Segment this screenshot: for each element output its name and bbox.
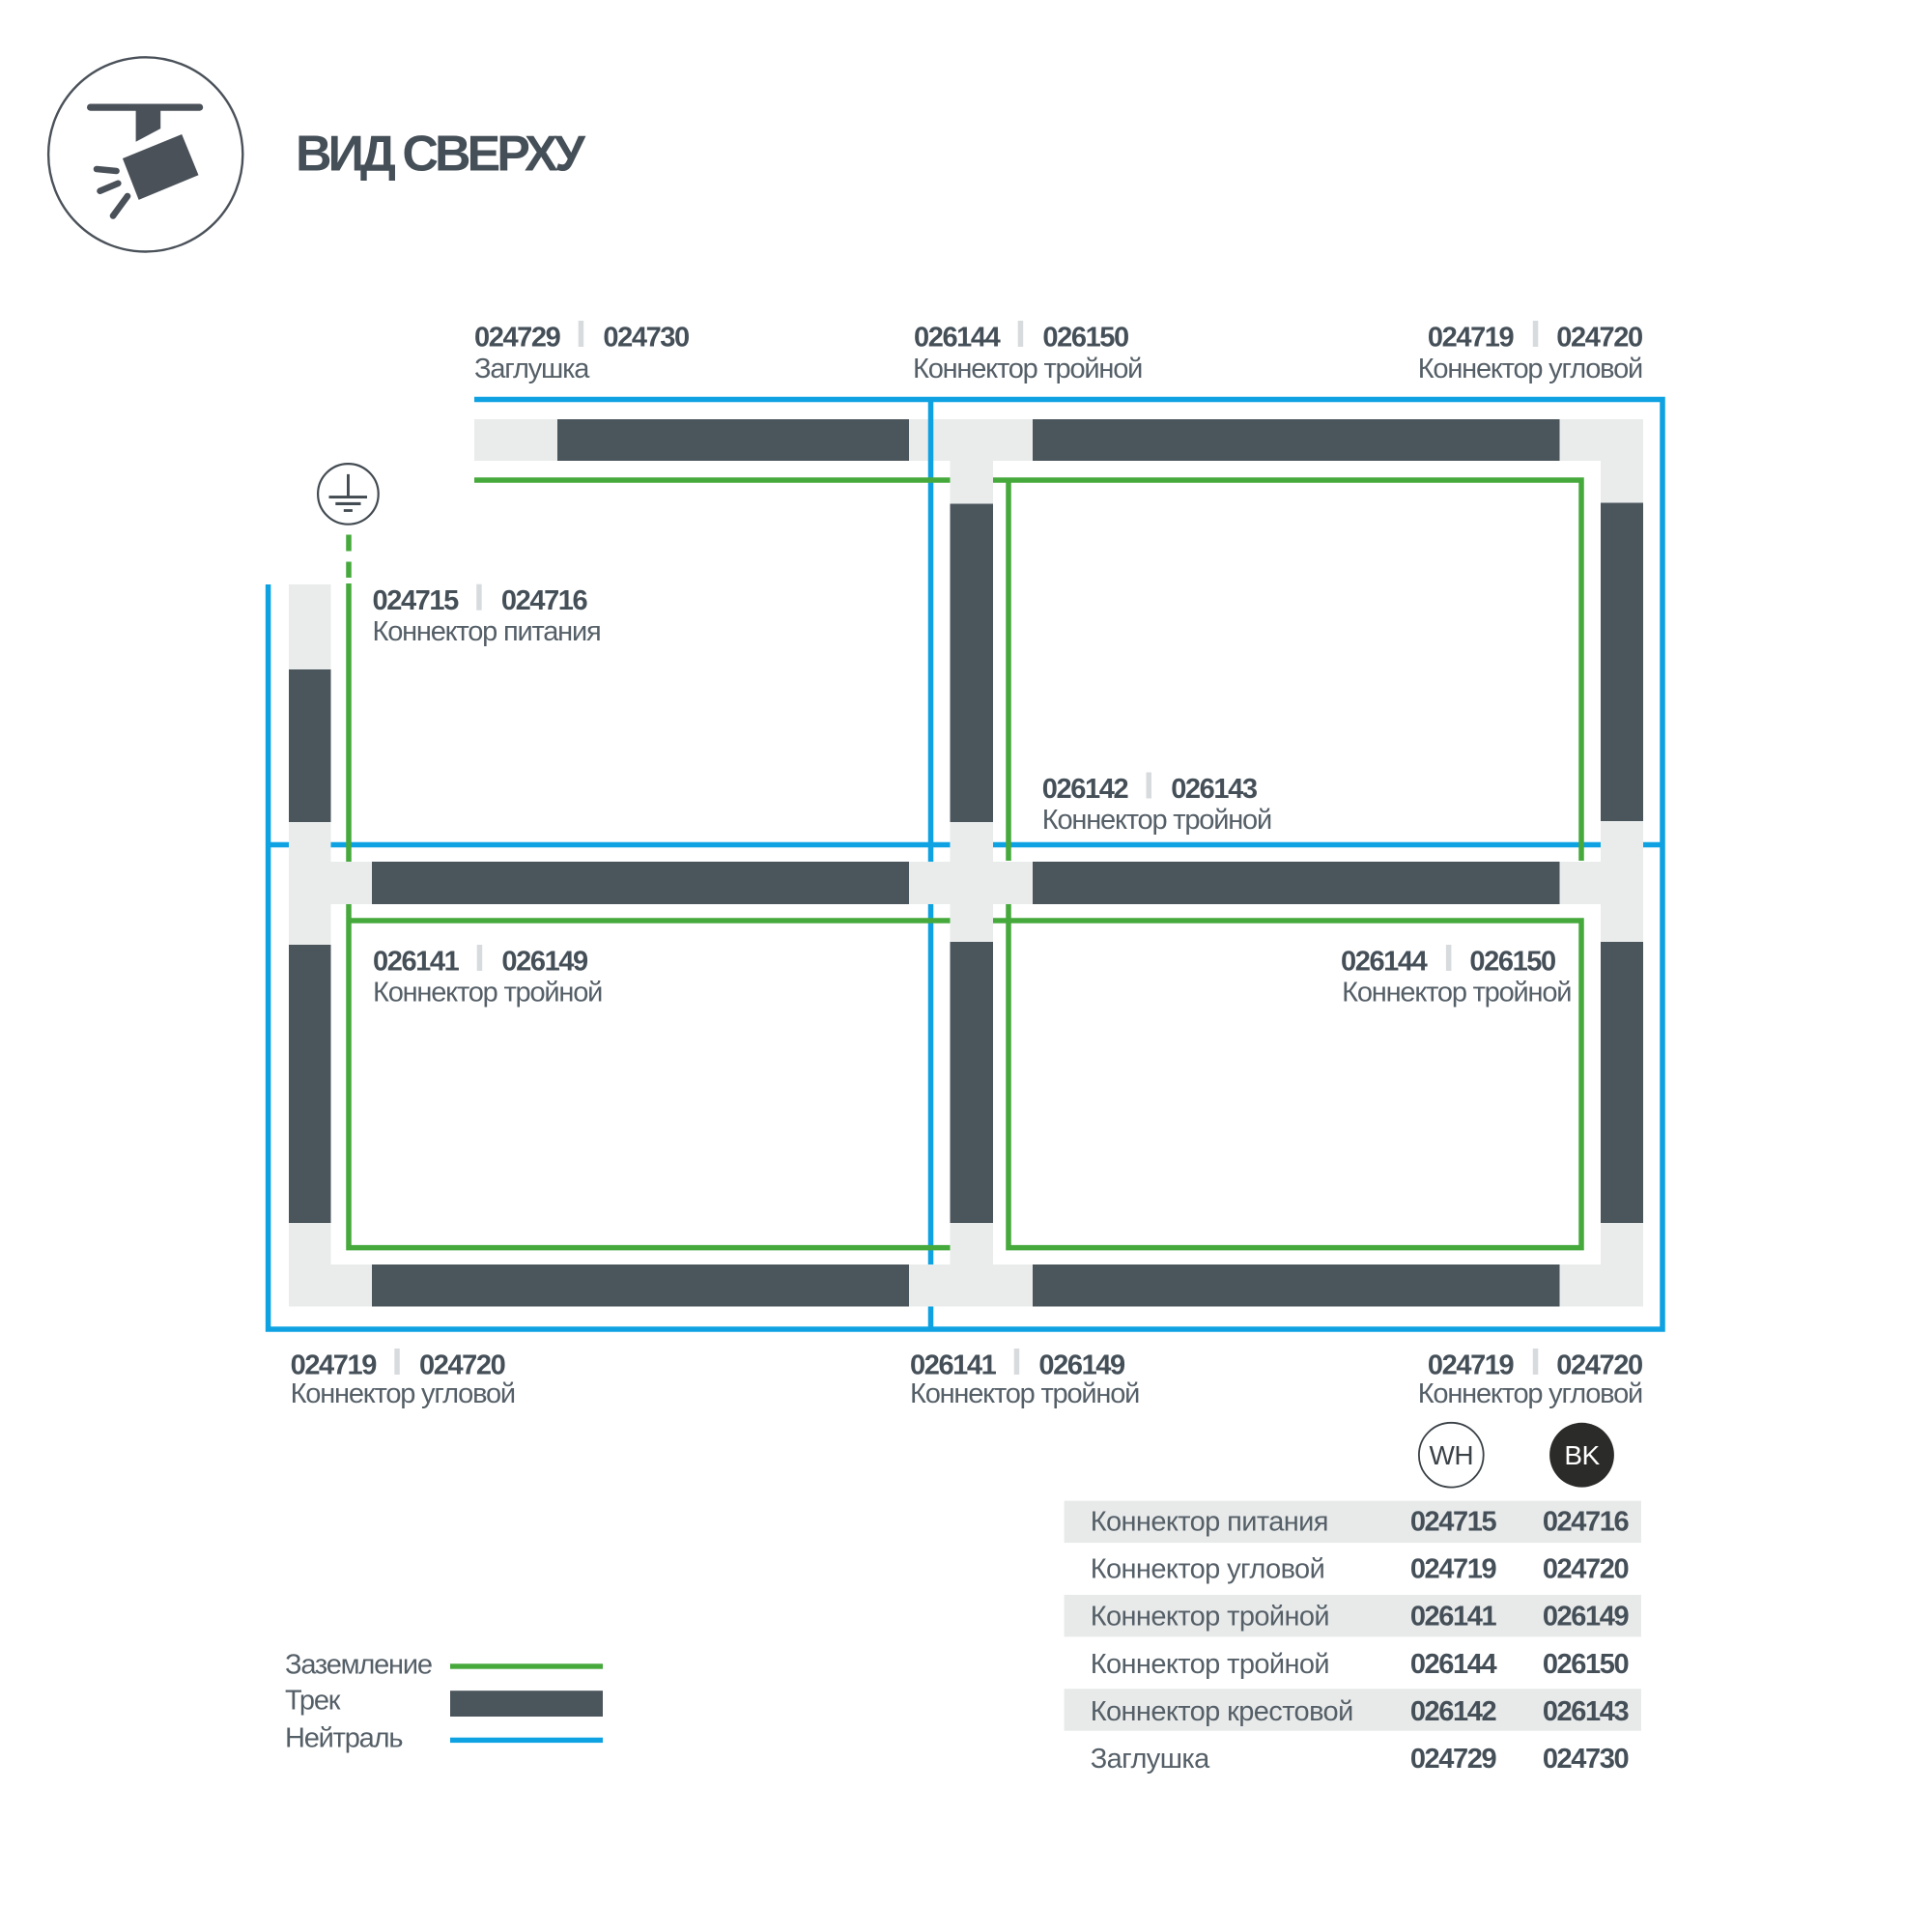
svg-text:Коннектор угловой: Коннектор угловой	[1418, 354, 1642, 384]
svg-text:Заглушка: Заглушка	[1091, 1744, 1210, 1775]
svg-text:026149: 026149	[1543, 1602, 1630, 1633]
svg-text:Заземление: Заземление	[285, 1649, 432, 1680]
svg-text:024730: 024730	[1543, 1744, 1629, 1775]
svg-text:026150: 026150	[1543, 1649, 1629, 1680]
svg-text:024720: 024720	[1556, 323, 1642, 354]
svg-text:024720: 024720	[419, 1350, 505, 1381]
svg-text:026149: 026149	[1038, 1350, 1125, 1381]
svg-text:Трек: Трек	[285, 1685, 341, 1716]
svg-text:Нейтраль: Нейтраль	[285, 1723, 402, 1754]
svg-text:024719: 024719	[1428, 323, 1515, 354]
svg-text:026149: 026149	[501, 947, 588, 978]
svg-text:Коннектор тройной: Коннектор тройной	[1042, 805, 1271, 836]
svg-text:Коннектор угловой: Коннектор угловой	[1418, 1378, 1642, 1409]
svg-text:024716: 024716	[1543, 1506, 1630, 1537]
svg-text:026144: 026144	[1341, 947, 1428, 978]
svg-text:Коннектор угловой: Коннектор угловой	[1091, 1553, 1325, 1584]
svg-text:024720: 024720	[1556, 1350, 1642, 1381]
svg-text:026144: 026144	[914, 323, 1001, 354]
svg-text:026141: 026141	[1410, 1602, 1497, 1633]
svg-text:024715: 024715	[373, 585, 460, 616]
svg-text:Коннектор тройной: Коннектор тройной	[1091, 1602, 1329, 1633]
svg-text:024720: 024720	[1543, 1553, 1629, 1584]
svg-text:Коннектор угловой: Коннектор угловой	[291, 1378, 515, 1409]
svg-text:024719: 024719	[1428, 1350, 1515, 1381]
svg-text:Коннектор питания: Коннектор питания	[373, 616, 601, 647]
svg-text:Коннектор питания: Коннектор питания	[1091, 1506, 1328, 1537]
svg-text:026142: 026142	[1042, 774, 1128, 805]
svg-text:026142: 026142	[1410, 1696, 1496, 1727]
svg-text:026143: 026143	[1543, 1696, 1630, 1727]
svg-text:BK: BK	[1564, 1440, 1600, 1470]
svg-text:Коннектор тройной: Коннектор тройной	[1091, 1649, 1329, 1680]
svg-text:ВИД СВЕРХУ: ВИД СВЕРХУ	[296, 127, 586, 183]
svg-text:026141: 026141	[910, 1350, 997, 1381]
svg-text:Коннектор тройной: Коннектор тройной	[910, 1378, 1139, 1409]
svg-text:Коннектор крестовой: Коннектор крестовой	[1091, 1696, 1353, 1727]
svg-text:026144: 026144	[1410, 1649, 1497, 1680]
svg-text:024716: 024716	[501, 585, 588, 616]
svg-text:024730: 024730	[603, 323, 689, 354]
svg-text:026150: 026150	[1469, 947, 1555, 978]
svg-text:024715: 024715	[1410, 1506, 1497, 1537]
svg-text:Коннектор тройной: Коннектор тройной	[373, 978, 602, 1009]
svg-text:026150: 026150	[1042, 323, 1128, 354]
svg-text:024729: 024729	[1410, 1744, 1497, 1775]
svg-text:WH: WH	[1429, 1440, 1473, 1470]
svg-text:Коннектор тройной: Коннектор тройной	[913, 354, 1142, 384]
svg-text:024719: 024719	[1410, 1553, 1497, 1584]
svg-text:Коннектор тройной: Коннектор тройной	[1342, 978, 1571, 1009]
svg-text:024719: 024719	[291, 1350, 378, 1381]
svg-text:024729: 024729	[474, 323, 561, 354]
svg-text:Заглушка: Заглушка	[474, 354, 590, 384]
svg-text:026143: 026143	[1171, 774, 1258, 805]
svg-text:026141: 026141	[373, 947, 460, 978]
